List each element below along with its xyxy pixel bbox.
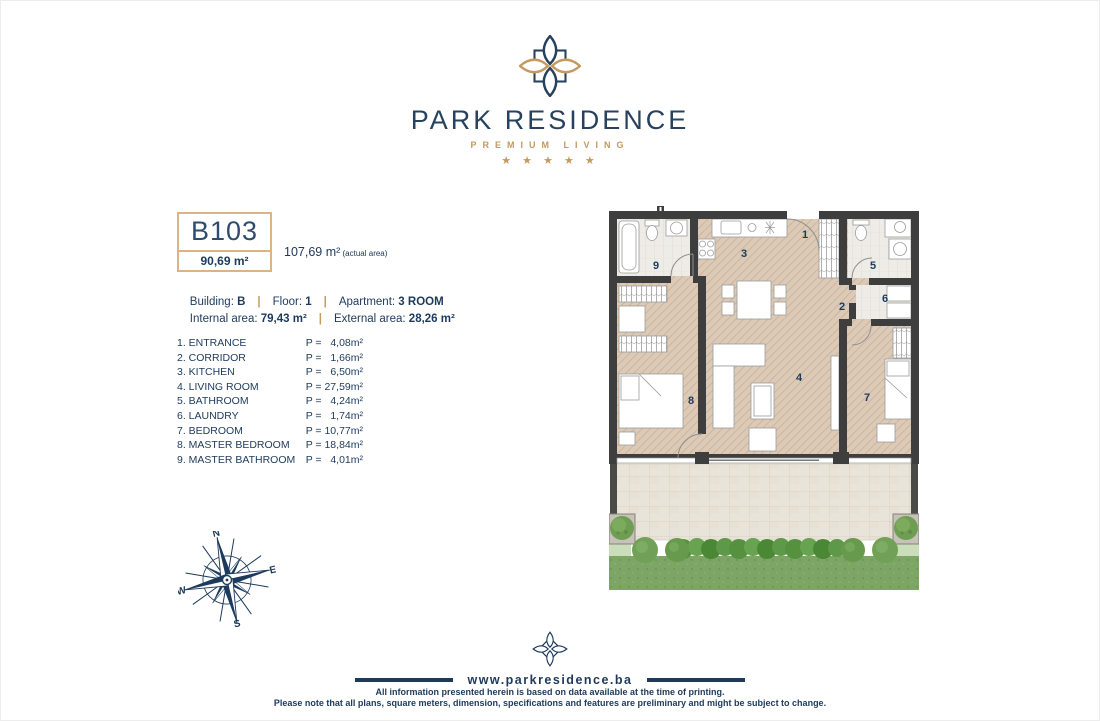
grass [609, 556, 919, 590]
chair [774, 285, 786, 298]
internal-area-label: Internal area: [190, 313, 261, 325]
room-name: 7. BEDROOM [177, 424, 306, 439]
room-row: 8. MASTER BEDROOMP = 18,84m² [177, 438, 363, 453]
website-bar-right [647, 678, 745, 682]
wardrobe [619, 286, 667, 302]
room-name: 4. LIVING ROOM [177, 380, 301, 395]
disclaimer-line-1: All information presented herein is base… [1, 687, 1099, 698]
brand-stars: ★ ★ ★ ★ ★ [1, 154, 1099, 167]
unit-net-area: 90,69 m² [179, 250, 270, 270]
unit-actual-area: 107,69 m² (actual area) [284, 245, 387, 259]
brand-name: PARK RESIDENCE [1, 105, 1099, 136]
chair [722, 285, 734, 298]
washing-machine [889, 239, 911, 259]
floor-plan: 1 2 3 4 5 6 7 8 9 [609, 206, 919, 596]
room-row: 3. KITCHENP = 6,50m² [177, 365, 363, 380]
room-area: P = 10,77m² [306, 424, 363, 439]
room-area: P = 18,84m² [306, 438, 363, 453]
room-row: 6. LAUNDRYP = 1,74m² [177, 409, 363, 424]
room-name: 8. MASTER BEDROOM [177, 438, 306, 453]
room-row: 9. MASTER BATHROOMP = 4,01m² [177, 453, 363, 468]
planter-tree-right [893, 514, 919, 544]
room-area: P = 1,74m² [301, 409, 363, 424]
actual-area-note: (actual area) [340, 249, 387, 258]
room-area: P = 4,01m² [306, 453, 363, 468]
room-area: P = 4,24m² [301, 394, 363, 409]
wardrobe [619, 336, 667, 352]
hedge [673, 538, 846, 559]
internal-area-value: 79,43 m² [261, 313, 307, 325]
room-area: P = 4,08m² [306, 336, 363, 351]
room-list: 1. ENTRANCEP = 4,08m² 2. CORRIDORP = 1,6… [177, 336, 363, 467]
unit-code: B103 [179, 214, 270, 250]
toilet [856, 226, 867, 241]
flower-logo-icon [519, 35, 581, 97]
room-label-8: 8 [688, 395, 694, 407]
side-table [749, 428, 776, 451]
room-row: 5. BATHROOMP = 4,24m² [177, 394, 363, 409]
room-name: 9. MASTER BATHROOM [177, 453, 306, 468]
entrance-wardrobe [819, 219, 839, 278]
room-area: P = 27,59m² [301, 380, 363, 395]
room-label-5: 5 [870, 260, 876, 272]
compass-rose-icon: N E S W [178, 531, 276, 629]
sofa [713, 344, 765, 366]
planter-tree-left [609, 514, 635, 544]
footer-logo [1, 631, 1099, 672]
room-row: 2. CORRIDORP = 1,66m² [177, 351, 363, 366]
website-row: www.parkresidence.ba [1, 673, 1099, 687]
external-area-label: External area: [334, 313, 409, 325]
room-name: 5. BATHROOM [177, 394, 301, 409]
disclaimer-line-2: Please note that all plans, square meter… [1, 698, 1099, 709]
pillow [621, 376, 639, 400]
compass-w: W [178, 585, 188, 598]
external-area-value: 28,26 m² [409, 313, 455, 325]
unit-box: B103 90,69 m² [177, 212, 272, 272]
dresser [619, 306, 645, 332]
toilet-tank [853, 220, 869, 225]
disclaimer: All information presented herein is base… [1, 687, 1099, 708]
room-label-2: 2 [839, 301, 845, 313]
website-url: www.parkresidence.ba [467, 673, 632, 687]
nightstand [619, 432, 635, 445]
compass-s: S [233, 618, 242, 629]
chair [774, 302, 786, 315]
floor-plan-drawing: 1 2 3 4 5 6 7 8 9 [609, 206, 919, 596]
room-label-1: 1 [802, 229, 808, 241]
room-area: P = 1,66m² [306, 351, 363, 366]
tv-board [831, 356, 839, 430]
room-row: 7. BEDROOMP = 10,77m² [177, 424, 363, 439]
actual-area-value: 107,69 m² [284, 245, 340, 259]
terrace [610, 464, 918, 540]
dryer [887, 286, 911, 301]
coffee-table [751, 383, 774, 419]
detail-line-2: Internal area: 79,43 m²|External area: 2… [177, 301, 455, 337]
room-row: 1. ENTRANCEP = 4,08m² [177, 336, 363, 351]
compass-rose: N E S W [178, 531, 276, 629]
website-bar-left [355, 678, 453, 682]
room-name: 6. LAUNDRY [177, 409, 301, 424]
compass-n: N [212, 531, 222, 540]
header-logo: PARK RESIDENCE PREMIUM LIVING ★ ★ ★ ★ ★ [1, 35, 1099, 167]
wardrobe [893, 328, 911, 358]
pillow [887, 361, 909, 376]
separator: | [307, 313, 334, 325]
brand-tagline: PREMIUM LIVING [1, 140, 1099, 150]
footer-flower-icon [532, 631, 568, 667]
sofa-chaise [713, 366, 734, 428]
room-area: P = 6,50m² [306, 365, 363, 380]
desk [877, 424, 895, 442]
room-label-3: 3 [741, 248, 747, 260]
compass-e: E [269, 564, 276, 576]
room-row: 4. LIVING ROOMP = 27,59m² [177, 380, 363, 395]
chair [722, 302, 734, 315]
vent-symbol [765, 221, 775, 234]
washer [887, 303, 911, 318]
toilet [647, 226, 658, 241]
room-label-9: 9 [653, 260, 659, 272]
room-label-7: 7 [864, 392, 870, 404]
room-name: 1. ENTRANCE [177, 336, 306, 351]
room-label-4: 4 [796, 372, 803, 384]
dining-table [737, 281, 771, 319]
room-label-6: 6 [882, 293, 888, 305]
room-name: 3. KITCHEN [177, 365, 306, 380]
brochure-page: PARK RESIDENCE PREMIUM LIVING ★ ★ ★ ★ ★ … [0, 0, 1100, 721]
room-name: 2. CORRIDOR [177, 351, 306, 366]
